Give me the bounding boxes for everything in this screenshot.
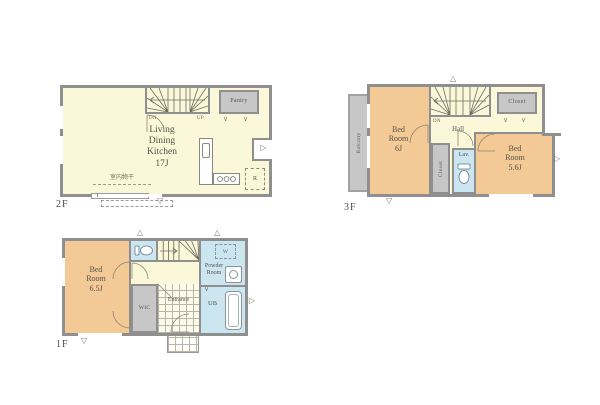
window-mark xyxy=(97,194,163,197)
washer-label: W xyxy=(223,249,228,255)
toilet-icon xyxy=(134,244,154,257)
door-arc xyxy=(478,134,495,151)
floorplan-2f: DN UP Pantry ∨ ∨ Living Dining Kitchen 1… xyxy=(60,85,272,197)
bathtub-icon xyxy=(225,291,242,330)
floorplan-3f: Balcony Bed Room 6J △ DN xyxy=(348,84,564,200)
floor-label-1f: 1F xyxy=(56,339,69,350)
balcony: Balcony xyxy=(348,94,369,192)
vent-mark: ▷ xyxy=(249,297,255,305)
staircase-1f xyxy=(158,241,199,262)
wic-label: WIC xyxy=(139,305,151,312)
door-arc xyxy=(132,263,148,279)
stair-treads xyxy=(431,87,489,115)
pantry-label: Pantry xyxy=(230,98,247,106)
floorplan-3f-main: Bed Room 6J △ DN Hall Closet xyxy=(367,84,555,197)
floor-label-3f: 3F xyxy=(344,202,357,213)
washer-space: W xyxy=(215,244,236,259)
room-lavatory: Lav. xyxy=(452,148,476,194)
room-wic: WIC xyxy=(131,284,158,333)
door-arc xyxy=(410,125,428,143)
folding-door-mark: ∨ xyxy=(204,286,209,293)
room-pantry: Pantry xyxy=(219,90,259,114)
stairs-down-label: DN xyxy=(433,119,441,124)
staircase-2f xyxy=(145,88,210,114)
vent-mark: ▷ xyxy=(554,155,560,163)
toilet-icon xyxy=(457,163,471,185)
stove-icon xyxy=(214,174,239,184)
vent-mark: △ xyxy=(450,75,456,83)
entrance-porch xyxy=(167,336,199,353)
room-closet-mid: Closet xyxy=(431,143,450,194)
lavatory-label: Lav. xyxy=(454,152,474,159)
vent-mark: ▷ xyxy=(260,144,266,152)
fridge-label: R xyxy=(253,176,257,182)
staircase-3f xyxy=(431,87,491,117)
window-mark xyxy=(367,135,370,169)
door-arc xyxy=(147,115,164,132)
fridge-space: R xyxy=(245,168,265,190)
kitchen-counter xyxy=(199,138,213,185)
vent-mark: ▽ xyxy=(81,337,87,345)
vent-mark: △ xyxy=(137,229,143,237)
window-mark xyxy=(60,135,63,165)
window-mark xyxy=(367,103,370,129)
door-arc xyxy=(113,262,130,279)
door-arc xyxy=(458,131,473,146)
unit-bath-label: UB xyxy=(208,300,217,307)
floorplan-1f: Bed Room 6.5J W Powder Room xyxy=(62,238,248,336)
balcony-label: Balcony xyxy=(356,132,362,153)
folding-door-mark: ∨ xyxy=(521,117,526,124)
stair-treads xyxy=(147,88,208,112)
door-arc xyxy=(113,311,130,328)
room-closet-top: Closet xyxy=(497,92,537,114)
kitchen-sink-icon xyxy=(202,143,210,158)
sink-icon xyxy=(225,266,242,283)
indoor-drying-mark: 室内物干 xyxy=(93,166,151,185)
folding-door-mark: ∨ xyxy=(503,117,508,124)
vent-mark: ▽ xyxy=(386,197,392,205)
stair-treads xyxy=(158,241,199,260)
folding-door-mark: ∨ xyxy=(223,116,228,123)
closet-mid-label: Closet xyxy=(438,160,444,176)
room-toilet xyxy=(131,241,158,262)
window-mark xyxy=(62,257,65,287)
indoor-drying-label: 室内物干 xyxy=(110,175,134,181)
kitchen-counter xyxy=(213,173,240,185)
stairs-up-label: UP xyxy=(197,116,204,121)
window-mark xyxy=(60,105,63,130)
window-mark xyxy=(488,194,534,197)
wall-notch xyxy=(542,84,561,136)
folding-door-mark: ∨ xyxy=(243,116,248,123)
vent-mark: ▽ xyxy=(157,197,163,205)
door-arc xyxy=(171,314,189,332)
floorplan-canvas: DN UP Pantry ∨ ∨ Living Dining Kitchen 1… xyxy=(0,0,600,405)
vent-mark: △ xyxy=(214,229,220,237)
slope-mark xyxy=(158,284,173,299)
powder-room-label: Powder Room xyxy=(200,263,228,277)
window-mark xyxy=(77,333,123,336)
closet-top-label: Closet xyxy=(508,99,525,107)
floor-label-2f: 2F xyxy=(56,199,69,210)
